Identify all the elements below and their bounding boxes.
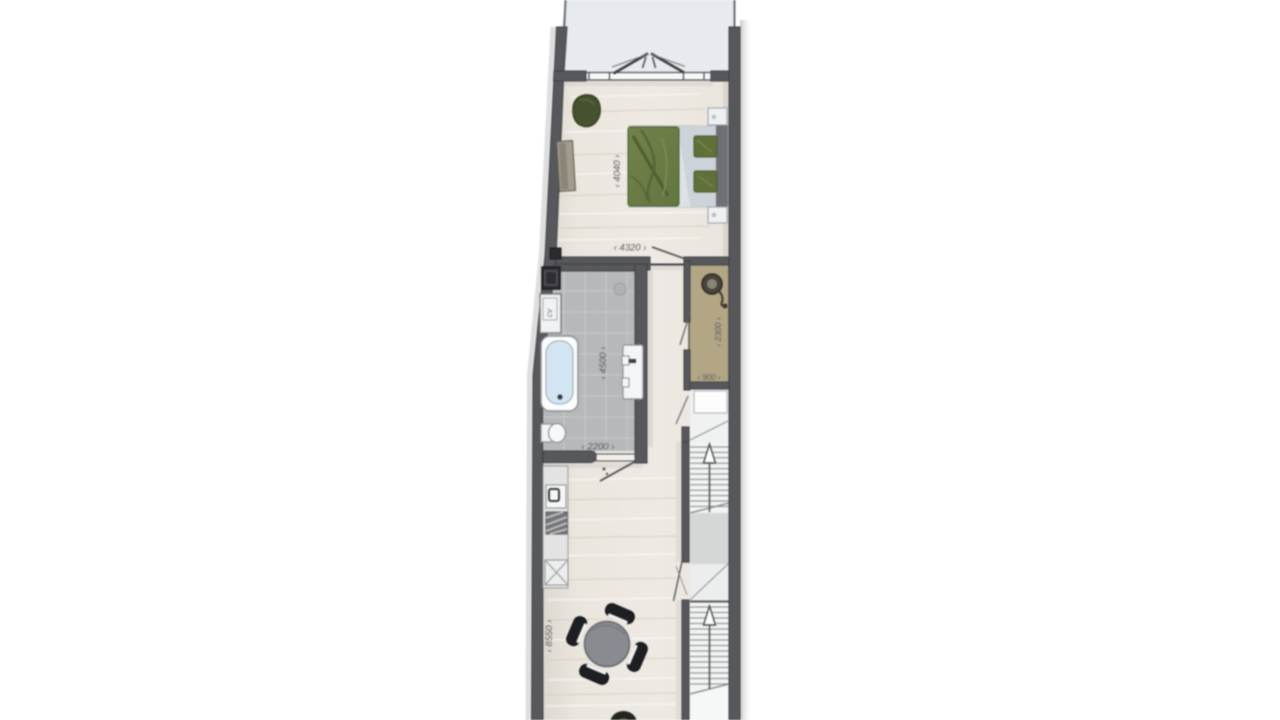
svg-text:‹ 8550 ›: ‹ 8550 ›	[544, 620, 555, 653]
svg-text:‹ 2300 ›: ‹ 2300 ›	[713, 317, 723, 346]
svg-text:‹ 2200 ›: ‹ 2200 ›	[582, 442, 615, 453]
svg-text:‹ 4040 ›: ‹ 4040 ›	[612, 155, 623, 188]
svg-text:‹ 4320 ›: ‹ 4320 ›	[614, 243, 647, 254]
svg-text:CV: CV	[548, 308, 554, 317]
svg-text:‹ 4500 ›: ‹ 4500 ›	[598, 347, 609, 380]
svg-text:‹ 900 ›: ‹ 900 ›	[697, 373, 720, 382]
